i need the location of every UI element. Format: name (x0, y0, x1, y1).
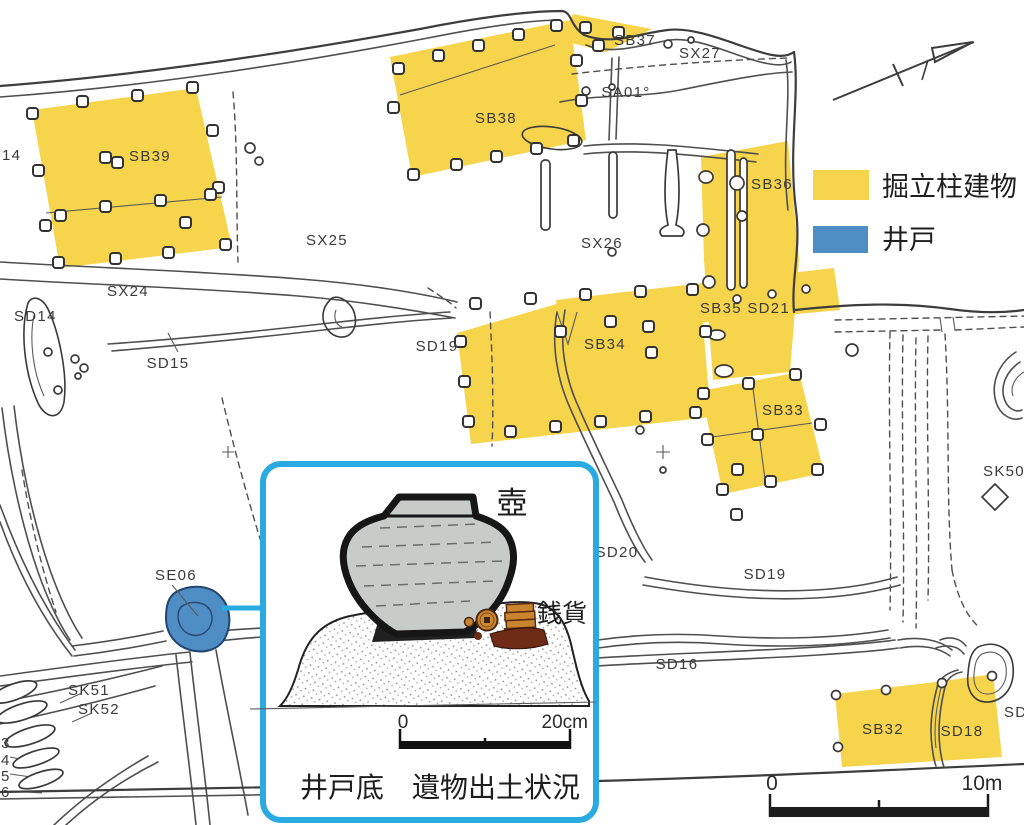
legend-well-label: 井戸 (882, 225, 936, 255)
label-se06: SE06 (155, 567, 197, 584)
label-sx27: SX27 (679, 45, 721, 62)
label-sx24: SX24 (107, 283, 149, 300)
label-sb38: SB38 (475, 110, 517, 127)
building-sb39-area (32, 88, 232, 268)
inset-caption: 井戸底 遺物出土状況 (300, 772, 580, 803)
label-4: 4 (1, 752, 11, 769)
label-sd20: SD20 (596, 544, 639, 561)
label-sd18: SD18 (941, 723, 984, 740)
label-sx25: SX25 (306, 232, 348, 249)
legend-building-label: 掘立柱建物 (882, 172, 1017, 202)
label-14: 14 (2, 147, 21, 164)
label-sb32: SB32 (862, 721, 904, 738)
label-sa01: SA01° (601, 84, 650, 101)
label-sb37: SB37 (614, 32, 656, 49)
sk50-pit (982, 484, 1008, 510)
inset-coins-label: 銭貨 (537, 600, 587, 628)
well-se06 (166, 585, 229, 651)
map-scale-bar: 0 10m (766, 772, 1002, 817)
label-sd-partial: SD (1004, 704, 1024, 721)
label-sd19-east: SD19 (744, 566, 787, 583)
label-3: 3 (1, 735, 11, 752)
label-sb33: SB33 (762, 402, 804, 419)
legend-well-swatch (813, 226, 868, 253)
excavation-site-plan: 掘立柱建物 井戸 14 SB39 SB38 SB37 SX27 SA01° SB… (0, 0, 1024, 825)
map-scale-start: 0 (766, 772, 778, 795)
label-sb34: SB34 (584, 336, 626, 353)
label-sd19-west: SD19 (416, 338, 459, 355)
label-sd15: SD15 (147, 355, 190, 372)
legend-building-swatch (813, 170, 869, 200)
well-se06-shape (166, 587, 229, 652)
inset-well-bottom: 壺 銭貨 0 20cm 井戸底 遺物出土状況 (222, 464, 596, 820)
inset-pot-label: 壺 (497, 486, 528, 521)
label-6: 6 (1, 784, 11, 801)
label-sd16: SD16 (656, 656, 699, 673)
label-sk51: SK51 (68, 682, 110, 699)
site-plan-svg: 掘立柱建物 井戸 14 SB39 SB38 SB37 SX27 SA01° SB… (0, 0, 1024, 825)
building-sb38-area (390, 20, 586, 177)
label-sb39: SB39 (129, 148, 171, 165)
label-sx26: SX26 (581, 235, 623, 252)
label-sd14: SD14 (14, 308, 57, 325)
map-scale-end: 10m (962, 772, 1003, 795)
legend: 掘立柱建物 井戸 (813, 170, 1017, 255)
label-sb36: SB36 (751, 176, 793, 193)
north-arrow (833, 42, 974, 100)
inset-scale-end: 20cm (542, 712, 588, 733)
label-5: 5 (1, 768, 11, 785)
label-sb35-sd21: SB35 SD21 (700, 300, 790, 317)
label-sk52: SK52 (78, 701, 120, 718)
label-sk50: SK50 (983, 463, 1024, 480)
